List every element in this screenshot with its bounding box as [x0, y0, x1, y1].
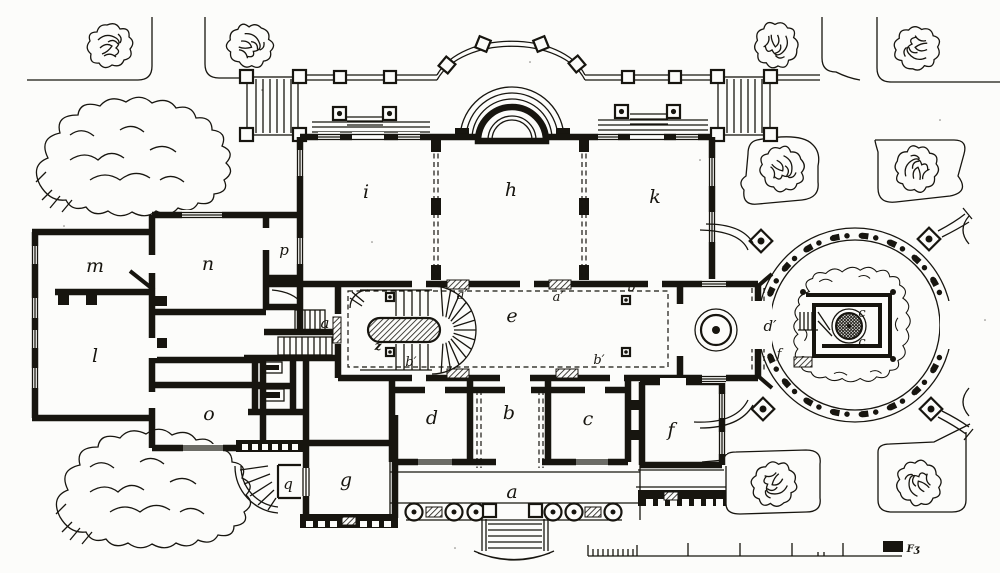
door — [610, 374, 624, 383]
room-label-p: p — [279, 241, 289, 259]
porch-g — [300, 514, 398, 528]
quarter-stair — [235, 466, 278, 513]
room-label-c: c — [583, 408, 594, 430]
door — [585, 386, 605, 394]
door — [147, 392, 157, 408]
tree-icon — [748, 16, 805, 74]
scale-unit-label: Fʒ — [906, 544, 921, 555]
round-trees — [87, 14, 947, 513]
garden-bed-outlines — [27, 17, 1000, 514]
mark-c-grotto-2: c — [858, 335, 866, 350]
room-label-g: g — [340, 469, 352, 491]
door — [412, 279, 426, 289]
window — [30, 368, 40, 388]
pergola-post — [669, 71, 681, 83]
door — [505, 386, 531, 394]
bed-bottom-right-2 — [878, 424, 970, 512]
scale-bar: Fʒ — [588, 541, 921, 556]
column-screen-i-h-k — [434, 145, 586, 278]
building-walls — [32, 107, 772, 518]
room-label-h: h — [505, 179, 517, 201]
window — [30, 330, 40, 348]
shrub-cluster-top-left — [36, 97, 231, 216]
window — [717, 394, 727, 418]
bed-top-right-1 — [822, 17, 860, 80]
door — [261, 228, 271, 250]
door — [520, 279, 534, 289]
room-label-i: i — [363, 181, 369, 203]
window-sill — [418, 458, 452, 466]
door — [147, 255, 157, 273]
window — [702, 374, 726, 383]
south-steps — [474, 519, 554, 560]
room-label-m: m — [86, 255, 104, 277]
scale-end-block — [883, 541, 903, 552]
pergola-arch — [437, 41, 585, 80]
mark-b-prime-2: b′ — [593, 353, 604, 368]
pergola-post — [384, 71, 396, 83]
door — [412, 374, 426, 383]
room-label-d: d — [426, 407, 438, 429]
mark-f-grotto: f — [776, 347, 784, 362]
stair-label-z: z — [374, 339, 383, 353]
door — [425, 386, 445, 394]
tree-icon — [745, 456, 803, 513]
terrace-opening-b — [496, 458, 542, 466]
tree-icon — [888, 20, 946, 77]
sill-a-prime — [549, 280, 571, 289]
window — [702, 279, 726, 288]
door — [500, 374, 530, 383]
window — [30, 246, 40, 264]
window — [318, 132, 340, 142]
pergola-post — [533, 36, 549, 52]
tree-icon — [886, 138, 947, 199]
sill-b-prime — [556, 369, 578, 378]
mark-b-prime-3: b′ — [627, 280, 638, 295]
garden-stair-left — [240, 70, 306, 141]
floor-plan-engraving: Fʒ i h k m n p l o q g d b c f e a a z a… — [0, 0, 1000, 573]
tree-icon — [890, 454, 947, 512]
room-label-e: e — [506, 305, 517, 327]
room-label-k: k — [649, 186, 661, 208]
door — [660, 378, 686, 386]
window — [183, 444, 223, 452]
tree-icon — [219, 14, 282, 77]
mark-a-prime-2: a′ — [553, 290, 564, 305]
tree-icon — [87, 24, 133, 68]
door-north-i — [352, 132, 384, 142]
window — [182, 210, 222, 220]
window — [707, 158, 717, 186]
window — [598, 132, 618, 142]
mark-a-prime-1: a′ — [457, 288, 468, 303]
room-label-a-terrace: a — [506, 481, 517, 503]
bed-top-left-1 — [27, 17, 152, 80]
mark-b-prime-1: b′ — [405, 355, 416, 370]
door-north-k — [630, 132, 664, 142]
window-sill — [576, 458, 608, 466]
window — [398, 132, 420, 142]
porch-f — [636, 470, 726, 506]
door — [648, 279, 662, 289]
grotto-maze — [794, 289, 896, 367]
grotto-sill — [794, 357, 812, 367]
room-label-q: q — [283, 475, 293, 493]
room-label-n: n — [202, 253, 214, 275]
pergola-post — [334, 71, 346, 83]
plan-canvas: Fʒ i h k m n p l o q g d b c f e a a z a… — [0, 0, 1000, 573]
room-label-o: o — [203, 403, 214, 425]
window — [676, 132, 698, 142]
window — [30, 298, 40, 318]
pergola-post — [622, 71, 634, 83]
window-q — [301, 468, 311, 496]
room-label-l: l — [92, 345, 98, 367]
mark-c-grotto-1: c — [858, 306, 866, 321]
window — [295, 238, 305, 264]
porch-sw — [236, 440, 306, 452]
mark-d-prime: d′ — [763, 317, 777, 335]
room-label-a-door: a — [321, 314, 330, 332]
interior-details — [235, 145, 764, 560]
room-label-f: f — [665, 419, 677, 441]
pergola-post — [475, 36, 491, 52]
corner-winder-stair — [350, 290, 368, 308]
window — [707, 212, 717, 242]
window — [717, 432, 727, 454]
door-west-entry — [333, 314, 343, 344]
pergola-post — [439, 57, 456, 74]
window — [295, 150, 305, 176]
tree-icon — [754, 140, 811, 198]
garden-stair-right — [711, 70, 777, 141]
room-label-b: b — [503, 402, 515, 424]
door — [147, 338, 157, 358]
